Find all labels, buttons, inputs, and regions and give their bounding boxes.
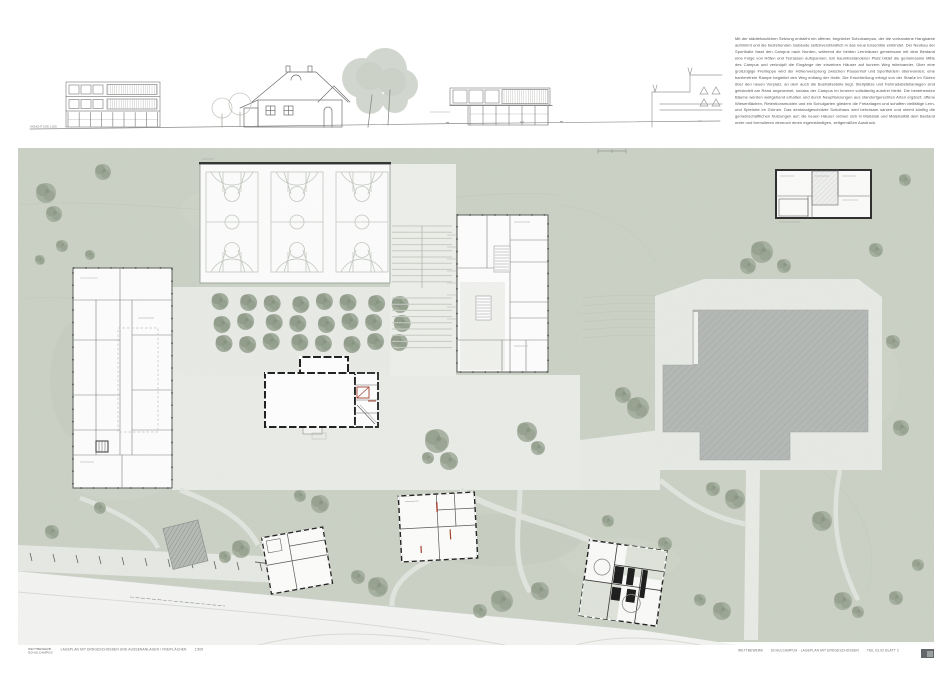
titleblock-right: WETTBEWERB SCHULCAMPUS · LAGEPLAN MIT ER…	[738, 649, 918, 661]
sheet-caption: LAGEPLAN MIT ERDGESCHOSSEN UND AUSSENANL…	[61, 648, 187, 652]
project-label: WETTBEWERB	[738, 649, 763, 653]
sheet-title: SCHULCAMPUS · LAGEPLAN MIT ERDGESCHOSSEN	[771, 649, 859, 653]
titleblock-left-block: WETTBEWERB SCHULCAMPUS	[28, 648, 53, 655]
sheet-badge-mark	[927, 651, 933, 657]
titleblock-left: WETTBEWERB SCHULCAMPUS LAGEPLAN MIT ERDG…	[28, 648, 328, 662]
texture-overlay	[18, 148, 934, 642]
sheet-number: TEIL 03.02 BLATT 2	[867, 649, 899, 653]
competition-board: ANSICHT SÜD 1:200 Mit der städtebauliche…	[0, 0, 952, 686]
elevation-label: ANSICHT SÜD 1:200	[30, 125, 57, 129]
project-description-text: Mit der städtebaulichen Setzung entsteht…	[735, 36, 935, 127]
project-name: SCHULCAMPUS	[28, 652, 53, 655]
site-plan	[18, 148, 934, 650]
sheet-scale: 1:500	[195, 648, 204, 652]
project-description: Mit der städtebaulichen Setzung entsteht…	[735, 36, 935, 136]
sheet-badge	[921, 649, 934, 658]
